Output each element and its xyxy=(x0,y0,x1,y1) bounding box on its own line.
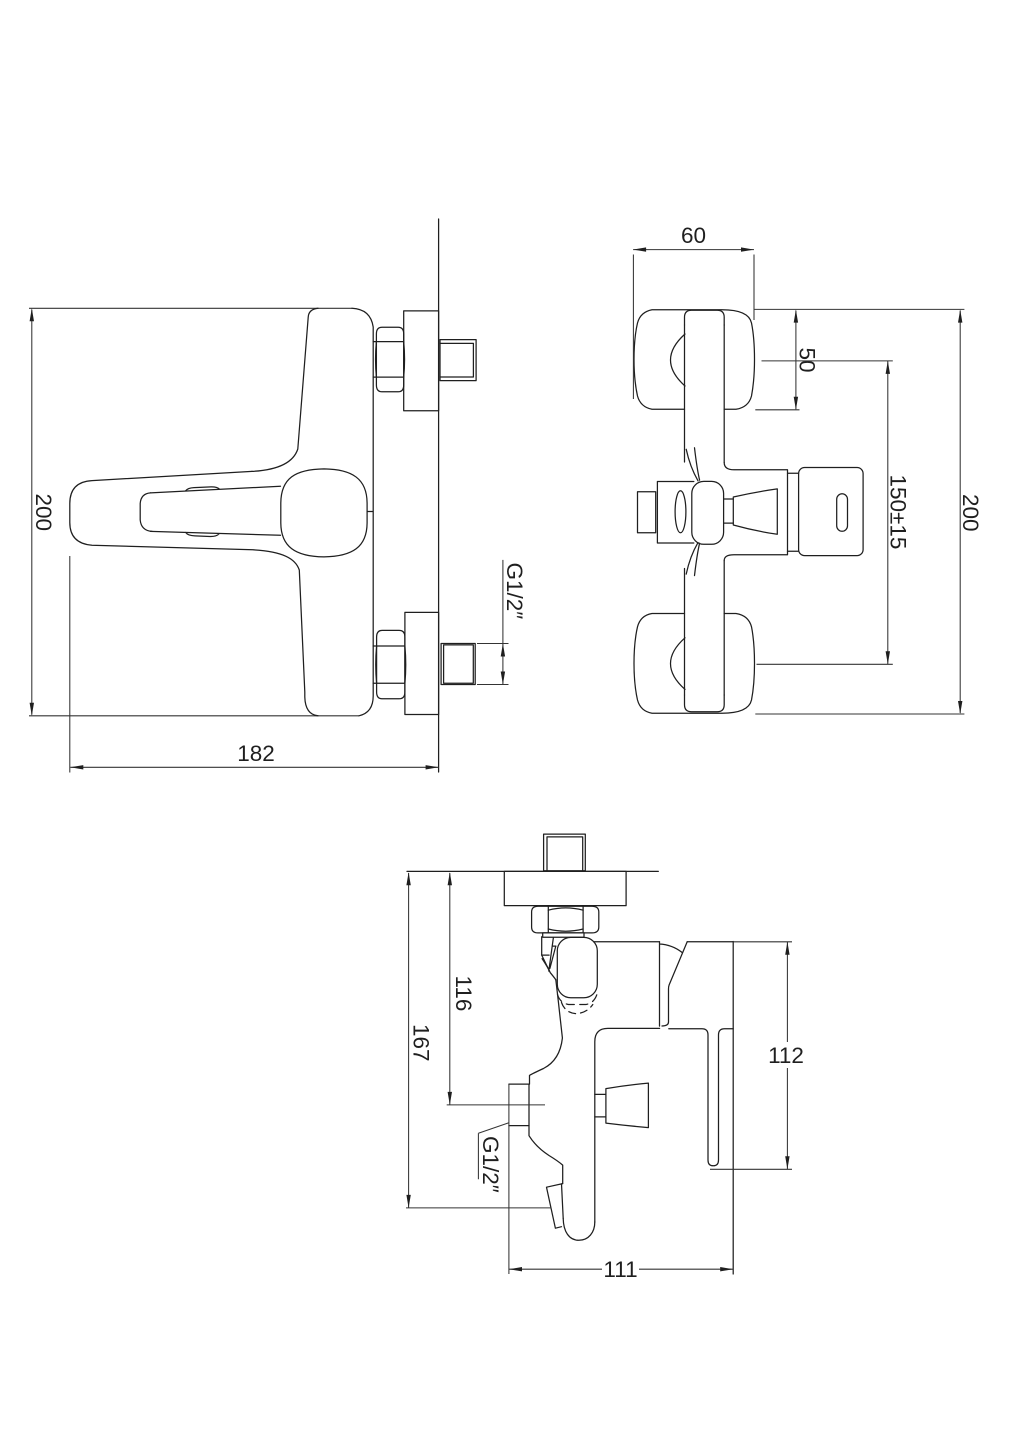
svg-text:111: 111 xyxy=(603,1257,637,1282)
svg-text:150±15: 150±15 xyxy=(886,475,911,550)
svg-text:50: 50 xyxy=(795,348,820,373)
svg-text:112: 112 xyxy=(768,1043,804,1068)
svg-text:G1/2″: G1/2″ xyxy=(478,1136,503,1193)
svg-text:200: 200 xyxy=(31,494,56,532)
svg-text:G1/2″: G1/2″ xyxy=(502,563,527,620)
svg-text:182: 182 xyxy=(237,741,275,766)
svg-text:200: 200 xyxy=(958,494,983,532)
svg-text:60: 60 xyxy=(681,223,706,248)
svg-text:116: 116 xyxy=(451,976,476,1012)
svg-text:167: 167 xyxy=(409,1024,434,1062)
